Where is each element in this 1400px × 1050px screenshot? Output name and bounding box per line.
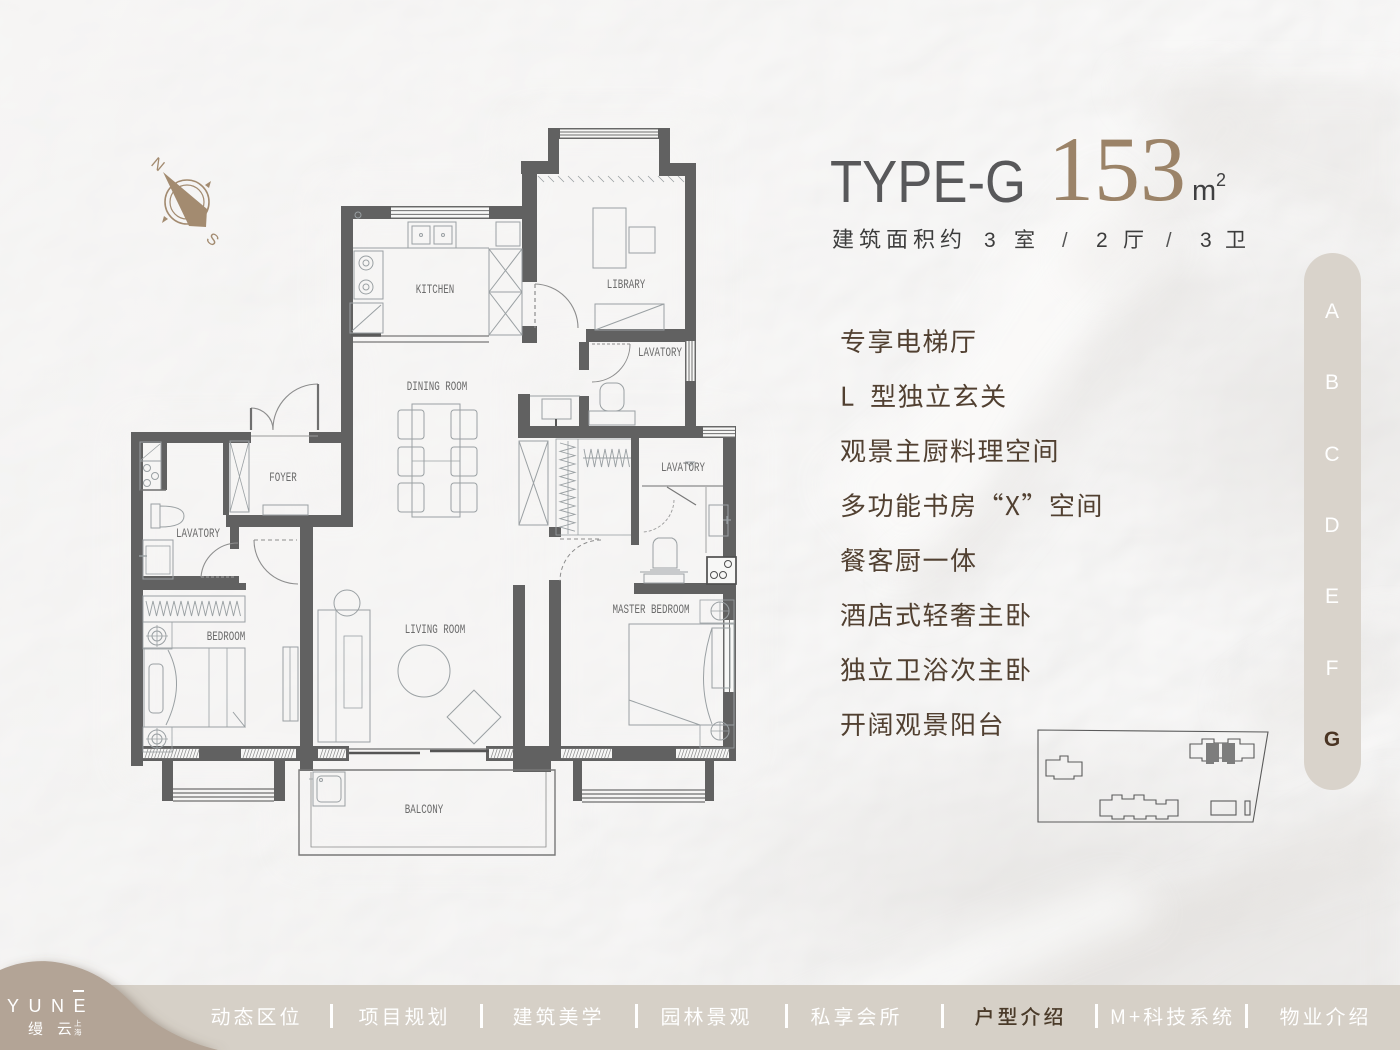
svg-text:LIVING ROOM: LIVING ROOM — [405, 623, 466, 637]
svg-text:BALCONY: BALCONY — [405, 803, 444, 817]
svg-text:LAVATORY: LAVATORY — [638, 346, 682, 360]
svg-text:LAVATORY: LAVATORY — [661, 461, 705, 475]
svg-text:A: A — [1325, 300, 1339, 323]
svg-text:E: E — [1325, 585, 1339, 608]
svg-text:/: / — [1062, 230, 1068, 252]
svg-text:DINING ROOM: DINING ROOM — [407, 380, 468, 394]
svg-text:3: 3 — [1200, 229, 1212, 252]
svg-text:3: 3 — [984, 229, 996, 252]
svg-text:TYPE-G: TYPE-G — [830, 149, 1026, 215]
svg-text:LIBRARY: LIBRARY — [607, 278, 646, 292]
svg-text:F: F — [1326, 657, 1339, 680]
svg-text:B: B — [1325, 371, 1339, 394]
svg-text:LAVATORY: LAVATORY — [176, 527, 220, 541]
svg-text:G: G — [1324, 728, 1340, 751]
svg-text:/: / — [1166, 230, 1172, 252]
svg-text:BEDROOM: BEDROOM — [207, 630, 246, 644]
svg-text:153: 153 — [1048, 118, 1186, 220]
svg-text:YUNE: YUNE — [7, 996, 95, 1016]
svg-text:KITCHEN: KITCHEN — [416, 283, 455, 297]
svg-text:MASTER BEDROOM: MASTER BEDROOM — [613, 603, 690, 617]
svg-text:m: m — [1192, 175, 1216, 207]
svg-text:C: C — [1324, 443, 1339, 466]
svg-text:2: 2 — [1096, 229, 1108, 252]
svg-text:D: D — [1324, 514, 1339, 537]
svg-text:2: 2 — [1216, 170, 1226, 190]
svg-text:FOYER: FOYER — [269, 471, 297, 485]
